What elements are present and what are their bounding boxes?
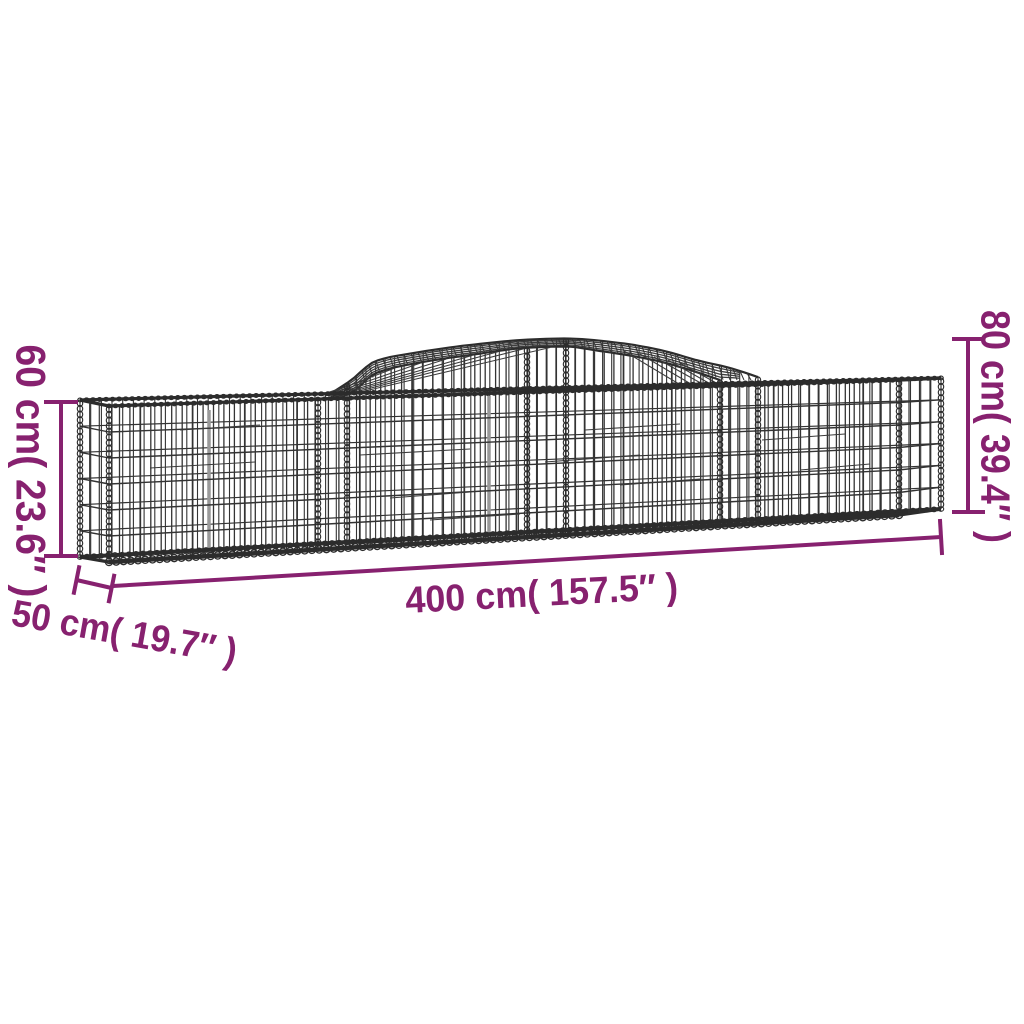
svg-text:50 cm( 19.7″ ): 50 cm( 19.7″ ): [9, 592, 241, 673]
svg-text:80 cm( 39.4″ ): 80 cm( 39.4″ ): [973, 310, 1019, 543]
svg-text:60 cm( 23.6″ ): 60 cm( 23.6″ ): [8, 345, 55, 598]
svg-text:400 cm( 157.5″ ): 400 cm( 157.5″ ): [404, 565, 679, 621]
